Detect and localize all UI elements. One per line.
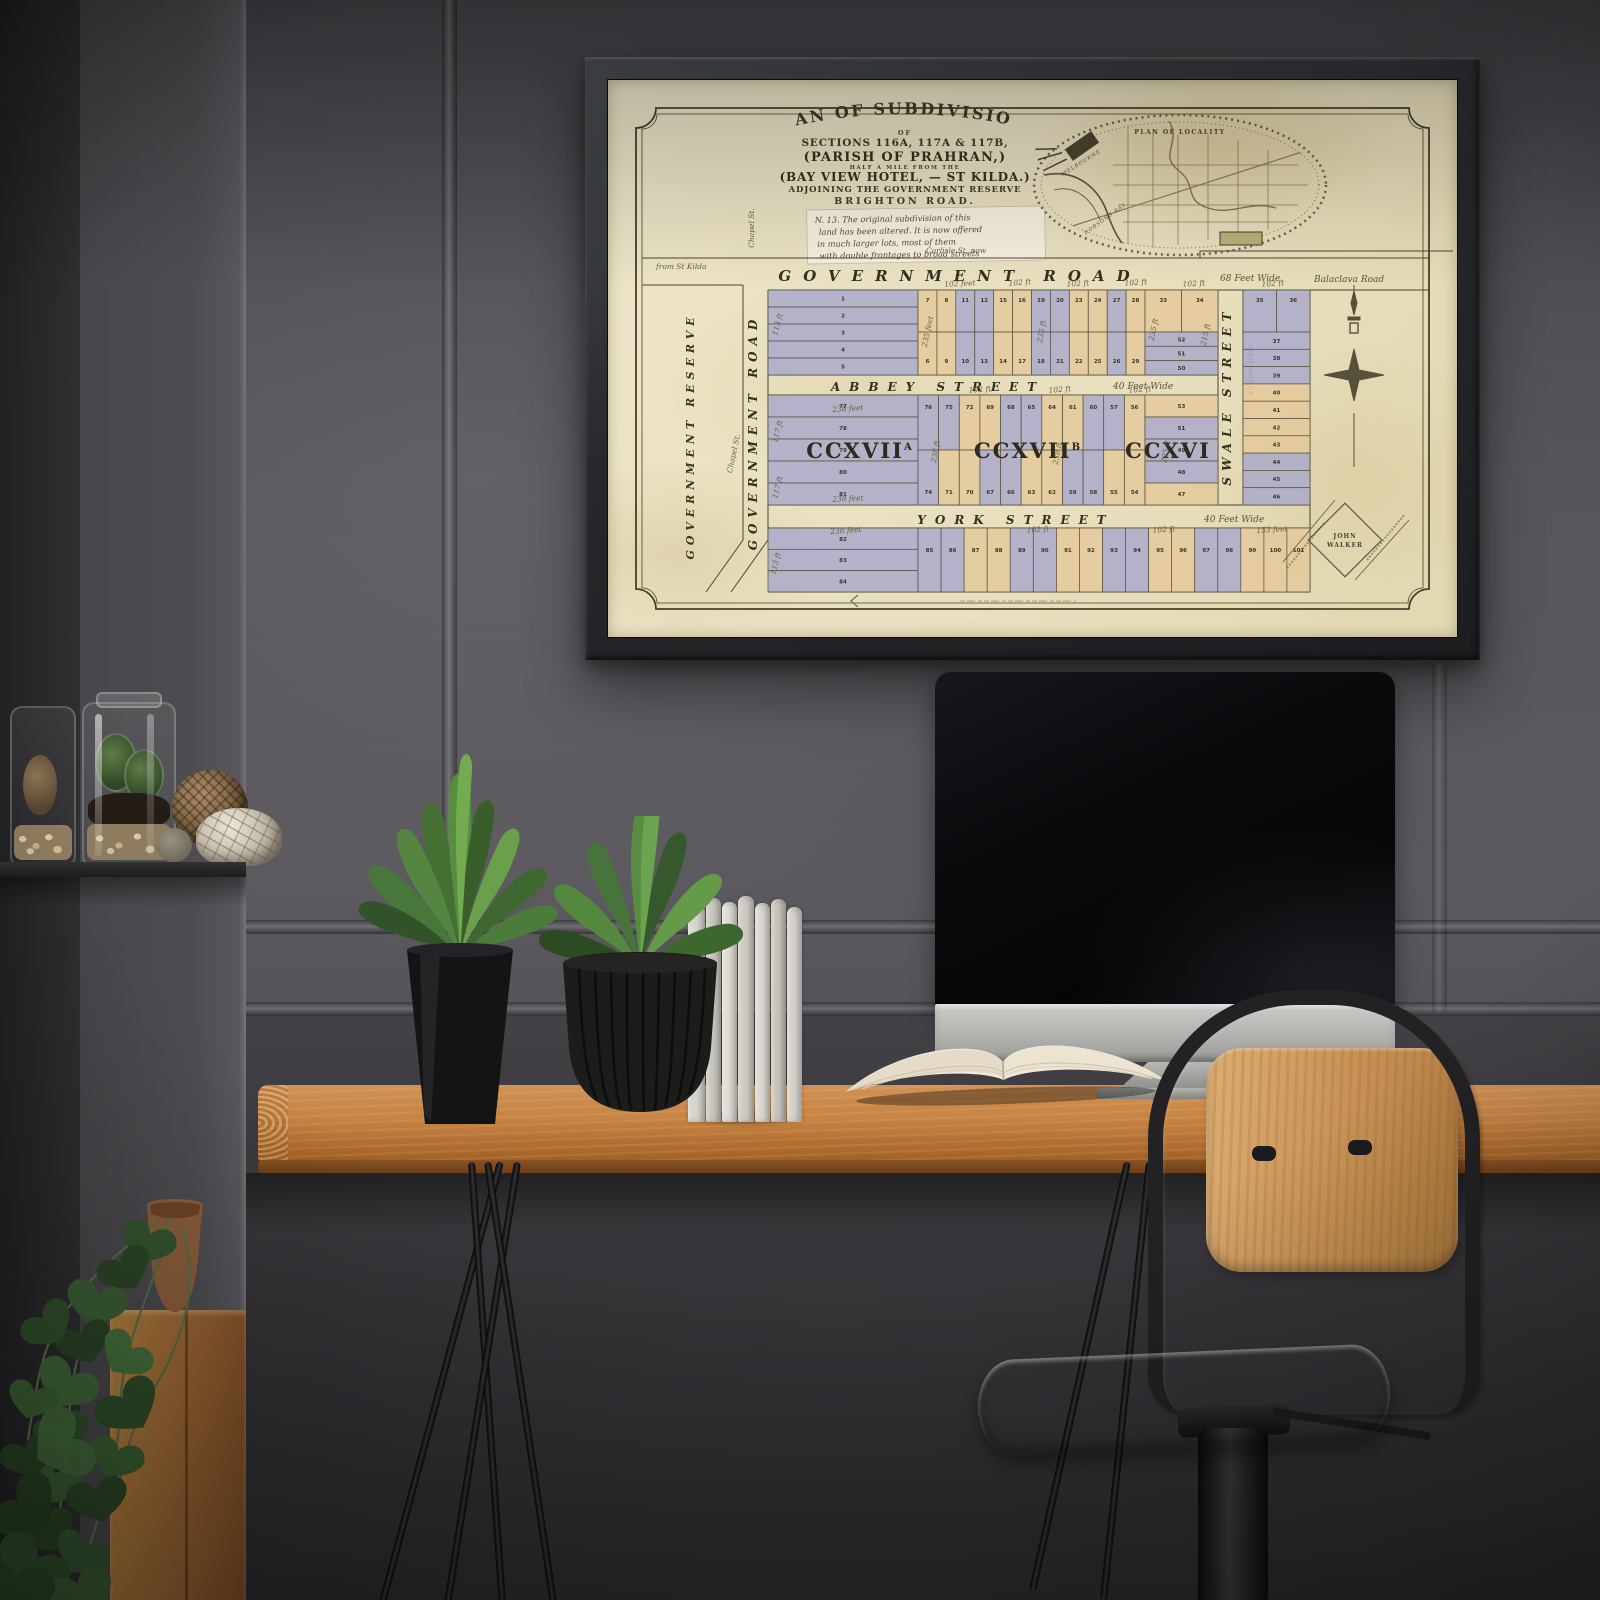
svg-text:51: 51: [1178, 426, 1186, 432]
svg-text:61: 61: [1069, 405, 1077, 411]
svg-text:75: 75: [945, 405, 953, 411]
svg-text:66: 66: [1007, 490, 1015, 496]
monitor-screen: [935, 672, 1395, 1012]
compass-rose: [1324, 285, 1384, 467]
dimension-note: 102 feet: [944, 278, 977, 289]
svg-text:27: 27: [1113, 298, 1121, 304]
svg-text:41: 41: [1273, 408, 1281, 414]
svg-text:55: 55: [1110, 490, 1118, 496]
svg-text:34: 34: [1196, 298, 1204, 304]
svg-text:42: 42: [1273, 425, 1281, 431]
svg-text:84: 84: [839, 580, 847, 586]
svg-text:Chapel St.: Chapel St.: [747, 208, 756, 248]
fern-leaves: [539, 816, 743, 968]
svg-text:Chapel St.: Chapel St.: [725, 433, 742, 474]
svg-text:54: 54: [1131, 490, 1139, 496]
dimension-note: 153 feet: [1256, 524, 1289, 535]
lot-block-c_left: 828384: [768, 528, 918, 592]
svg-text:94: 94: [1133, 548, 1141, 554]
svg-text:46: 46: [1273, 495, 1281, 501]
dimension-note: 102 ft: [1128, 384, 1152, 394]
svg-text:88: 88: [995, 548, 1003, 554]
svg-text:18: 18: [1037, 359, 1045, 365]
wall-molding-vertical-right: [1432, 664, 1447, 1012]
imprint-mark: [851, 595, 1076, 607]
dimension-note: 102 ft: [1261, 278, 1285, 289]
svg-text:15: 15: [999, 298, 1007, 304]
svg-text:OF: OF: [898, 129, 912, 137]
svg-text:68: 68: [1007, 405, 1015, 411]
svg-text:SWALE STREET: SWALE STREET: [1220, 306, 1234, 485]
svg-text:from St Kilda: from St Kilda: [655, 262, 707, 271]
dimension-note: 102 ft: [968, 384, 992, 394]
svg-text:59: 59: [1069, 490, 1077, 496]
wall-shelf: [0, 862, 246, 877]
svg-text:PLAN OF LOCALITY: PLAN OF LOCALITY: [1134, 129, 1225, 136]
svg-text:40 Feet Wide: 40 Feet Wide: [1203, 515, 1264, 525]
svg-text:60: 60: [1090, 405, 1098, 411]
svg-text:24: 24: [1094, 298, 1102, 304]
svg-text:Balaclava Road: Balaclava Road: [1313, 275, 1384, 285]
svg-text:Carlisle St. now: Carlisle St. now: [926, 246, 987, 255]
svg-text:63: 63: [1028, 490, 1036, 496]
svg-text:17: 17: [1018, 359, 1026, 365]
svg-text:58: 58: [1090, 490, 1098, 496]
svg-text:WALKER: WALKER: [1326, 542, 1363, 549]
svg-text:8: 8: [944, 298, 948, 304]
svg-text:44: 44: [1273, 460, 1281, 466]
subdivision-plan: PLAN OF SUBDIVISIONS OF SECTIONS 116A, 1…: [608, 80, 1457, 637]
svg-text:53: 53: [1178, 404, 1186, 410]
chair-pedestal: [1198, 1428, 1268, 1600]
potted-plant-ribbed: [505, 816, 775, 1126]
svg-text:3: 3: [841, 331, 845, 337]
map-title: PLAN OF SUBDIVISIONS OF SECTIONS 116A, 1…: [608, 80, 1030, 207]
lot-block-a_left: 12345: [768, 290, 918, 375]
chair-seat: [976, 1343, 1392, 1457]
svg-text:70: 70: [966, 490, 974, 496]
svg-text:92: 92: [1087, 548, 1095, 554]
svg-text:21: 21: [1056, 359, 1064, 365]
svg-text:56: 56: [1131, 405, 1139, 411]
lot-block-a_top: 7811121516192023242728: [918, 290, 1145, 332]
lot-block-c_row: 858687888990919293949596979899100101: [918, 528, 1310, 592]
svg-text:28: 28: [1132, 298, 1140, 304]
svg-text:51: 51: [1178, 352, 1186, 358]
svg-text:BRIGHTON ROAD.: BRIGHTON ROAD.: [834, 196, 976, 207]
glass-jar-small: [10, 706, 76, 868]
home-office-photo: PLAN OF SUBDIVISIONS OF SECTIONS 116A, 1…: [0, 0, 1600, 1600]
map-paper: PLAN OF SUBDIVISIONS OF SECTIONS 116A, 1…: [608, 80, 1457, 637]
svg-text:62: 62: [1048, 490, 1056, 496]
svg-text:99: 99: [1249, 548, 1257, 554]
svg-text:91: 91: [1064, 548, 1072, 554]
svg-text:16: 16: [1018, 298, 1026, 304]
svg-text:5: 5: [841, 365, 845, 371]
dimension-note: 102 ft: [1048, 384, 1072, 395]
svg-text:65: 65: [1028, 405, 1036, 411]
svg-text:38: 38: [1273, 356, 1281, 362]
dimension-note: 102 ft: [1152, 524, 1176, 535]
svg-text:GOVERNMENT RESERVE: GOVERNMENT RESERVE: [684, 312, 697, 559]
svg-text:80: 80: [839, 470, 847, 476]
svg-text:82: 82: [839, 537, 847, 543]
section-label: CCXVIIB: [974, 438, 1082, 463]
svg-text:47: 47: [1178, 492, 1186, 498]
svg-text:JOHN: JOHN: [1332, 533, 1356, 540]
lot-block-r_stack: 37383940414243444546: [1243, 332, 1310, 505]
section-label: CCXVIIA: [806, 438, 913, 463]
svg-text:87: 87: [972, 548, 980, 554]
svg-text:85: 85: [926, 548, 934, 554]
svg-text:72: 72: [966, 405, 974, 411]
svg-text:57: 57: [1110, 405, 1118, 411]
svg-text:86: 86: [949, 548, 957, 554]
svg-text:19: 19: [1037, 298, 1045, 304]
svg-text:22: 22: [1075, 359, 1083, 365]
svg-text:45: 45: [1273, 477, 1281, 483]
svg-text:25: 25: [1094, 359, 1102, 365]
svg-text:64: 64: [1048, 405, 1056, 411]
svg-text:GOVERNMENT ROAD: GOVERNMENT ROAD: [746, 314, 760, 551]
svg-text:50: 50: [1178, 366, 1186, 372]
chair-peg: [1348, 1140, 1372, 1155]
svg-text:10: 10: [961, 359, 969, 365]
stone: [156, 828, 192, 862]
svg-text:(BAY VIEW HOTEL, — ST KILDA.): (BAY VIEW HOTEL, — ST KILDA.): [780, 170, 1031, 184]
svg-text:23: 23: [1075, 298, 1083, 304]
svg-text:20: 20: [1056, 298, 1064, 304]
svg-text:95: 95: [1156, 548, 1164, 554]
map-note: N. 13. The original subdivision of this …: [807, 206, 1046, 264]
svg-text:52: 52: [1178, 337, 1186, 343]
svg-text:96: 96: [1179, 548, 1187, 554]
svg-text:9: 9: [944, 359, 948, 365]
shelf-shadow: [0, 877, 246, 907]
dimension-note: 102 ft: [1066, 278, 1090, 288]
svg-text:48: 48: [1178, 470, 1186, 476]
svg-text:89: 89: [1018, 548, 1026, 554]
svg-text:13: 13: [980, 359, 988, 365]
svg-text:1: 1: [841, 297, 845, 303]
svg-text:67: 67: [986, 490, 994, 496]
svg-text:98: 98: [1225, 548, 1233, 554]
svg-text:69: 69: [986, 405, 994, 411]
book-spine: [787, 907, 802, 1122]
svg-text:76: 76: [924, 405, 932, 411]
svg-text:36: 36: [1289, 298, 1297, 304]
svg-text:43: 43: [1273, 443, 1281, 449]
svg-text:97: 97: [1202, 548, 1210, 554]
scale-bar: [1200, 232, 1453, 258]
svg-text:71: 71: [945, 490, 953, 496]
svg-text:6: 6: [926, 359, 930, 365]
dimension-note: 102 ft: [1008, 277, 1032, 288]
svg-text:90: 90: [1041, 548, 1049, 554]
svg-text:ABBEY STREET: ABBEY STREET: [830, 380, 1045, 394]
chair-peg: [1252, 1146, 1276, 1161]
svg-text:PLAN OF SUBDIVISIONS: PLAN OF SUBDIVISIONS: [608, 80, 1014, 130]
svg-text:40: 40: [1273, 391, 1281, 397]
ribbed-pot: [563, 952, 717, 1112]
svg-text:26: 26: [1113, 359, 1121, 365]
svg-text:7: 7: [926, 298, 930, 304]
framed-map: PLAN OF SUBDIVISIONS OF SECTIONS 116A, 1…: [585, 57, 1480, 660]
svg-text:93: 93: [1110, 548, 1118, 554]
lot-block-r_pair: 3536: [1243, 290, 1310, 332]
svg-text:SECTIONS 116A, 117A & 117B,: SECTIONS 116A, 117A & 117B,: [802, 137, 1009, 149]
svg-text:12: 12: [980, 298, 988, 304]
dimension-note: 102 ft: [1026, 524, 1050, 534]
svg-text:100: 100: [1270, 548, 1282, 554]
svg-text:29: 29: [1132, 359, 1140, 365]
lot-block-a_bottom: 6910131417182122252629: [918, 332, 1145, 375]
svg-text:11: 11: [961, 298, 969, 304]
svg-text:39: 39: [1273, 373, 1281, 379]
dimension-note: 238 feet: [831, 493, 865, 504]
section-labels: CCXVIIACCXVIIBCCXVI: [806, 438, 1211, 463]
svg-text:35: 35: [1256, 298, 1264, 304]
svg-text:2: 2: [841, 314, 845, 320]
svg-text:74: 74: [924, 490, 932, 496]
svg-text:14: 14: [999, 359, 1007, 365]
svg-text:83: 83: [839, 558, 847, 564]
stone-ball: [196, 808, 282, 866]
open-book: [834, 1016, 1177, 1112]
svg-text:33: 33: [1159, 298, 1167, 304]
locality-plan: PLAN OF LOCALITY MELBOURNE HOBSONS BAY: [1031, 115, 1326, 255]
svg-text:78: 78: [839, 426, 847, 432]
svg-text:37: 37: [1273, 339, 1281, 345]
dimension-note: 102 ft: [1124, 277, 1148, 288]
svg-text:(PARISH OF PRAHRAN,): (PARISH OF PRAHRAN,): [804, 150, 1007, 165]
trailing-pothos: [0, 1140, 300, 1600]
svg-text:YORK STREET: YORK STREET: [917, 513, 1114, 527]
dimension-note: 102 ft: [1182, 278, 1206, 288]
svg-text:ADJOINING THE GOVERNMENT RESER: ADJOINING THE GOVERNMENT RESERVE: [787, 185, 1021, 195]
svg-text:4: 4: [841, 348, 845, 354]
